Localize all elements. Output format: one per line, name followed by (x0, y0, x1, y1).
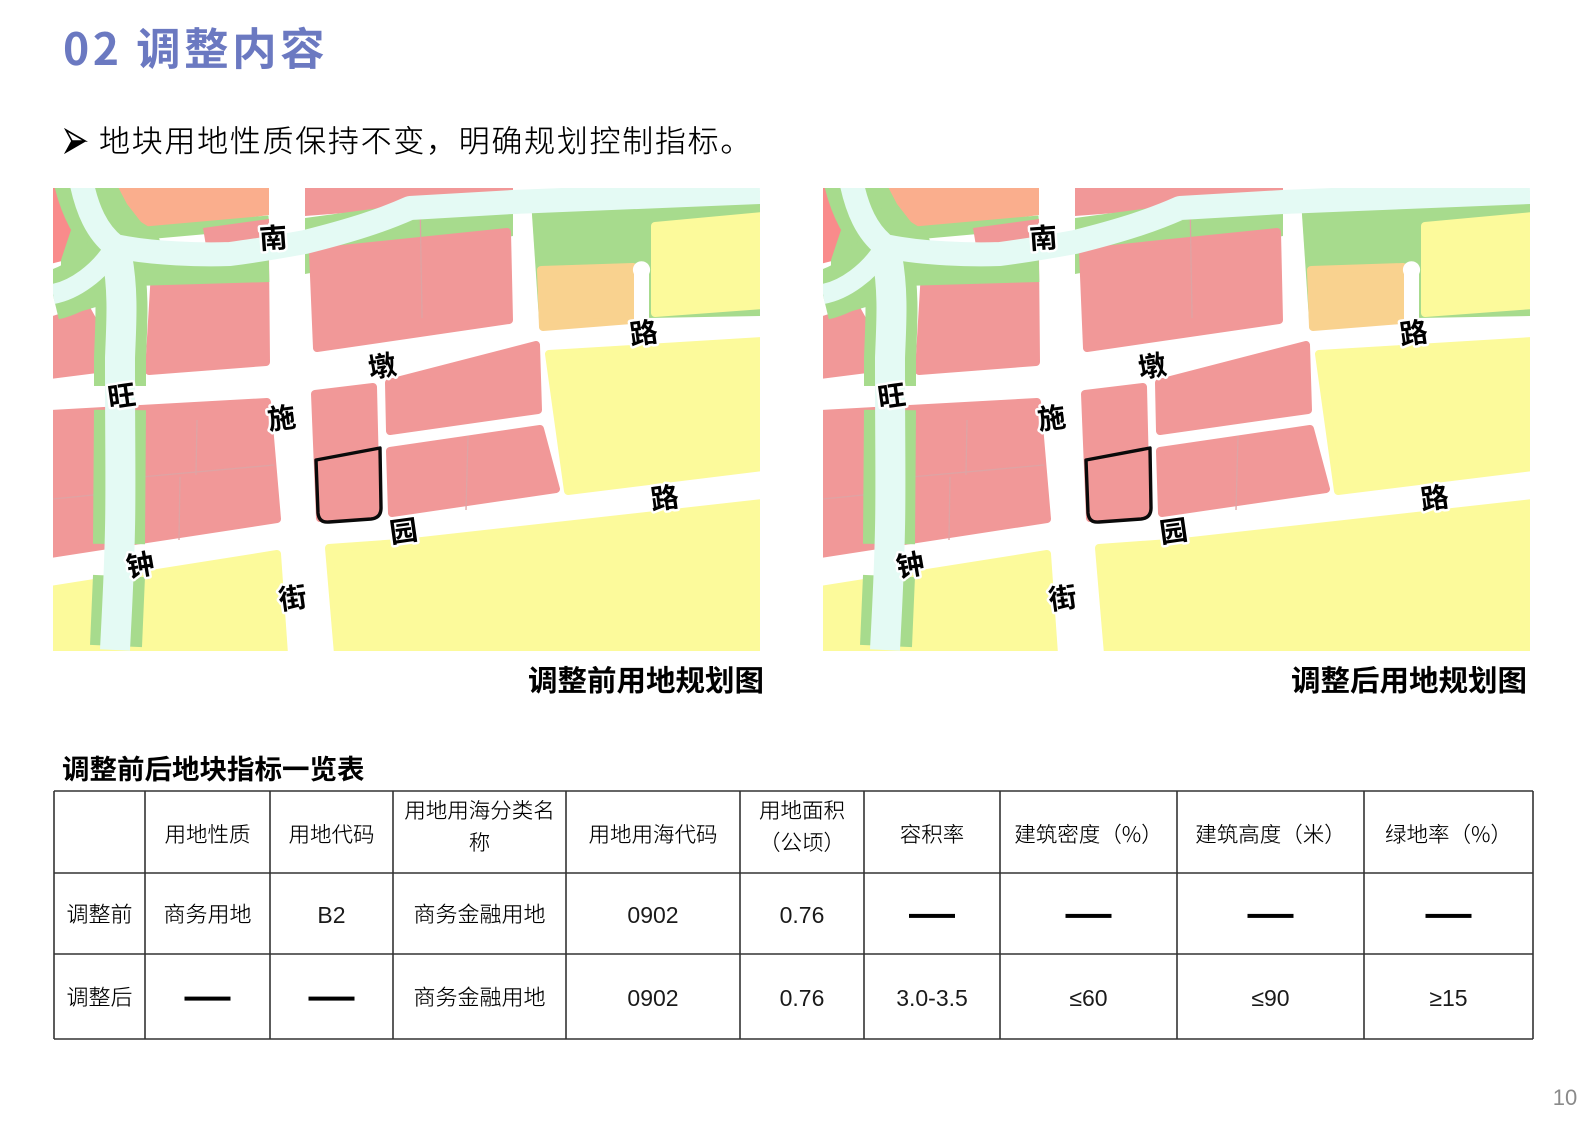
svg-text:0902: 0902 (627, 985, 678, 1011)
svg-text:B2: B2 (317, 902, 345, 928)
svg-text:≤60: ≤60 (1069, 985, 1107, 1011)
svg-text:10: 10 (1553, 1085, 1577, 1110)
svg-text:0.76: 0.76 (780, 985, 825, 1011)
svg-text:≤90: ≤90 (1251, 985, 1289, 1011)
svg-text:0.76: 0.76 (780, 902, 825, 928)
svg-text:0902: 0902 (627, 902, 678, 928)
svg-text:≥15: ≥15 (1429, 985, 1467, 1011)
svg-text:3.0-3.5: 3.0-3.5 (896, 985, 968, 1011)
